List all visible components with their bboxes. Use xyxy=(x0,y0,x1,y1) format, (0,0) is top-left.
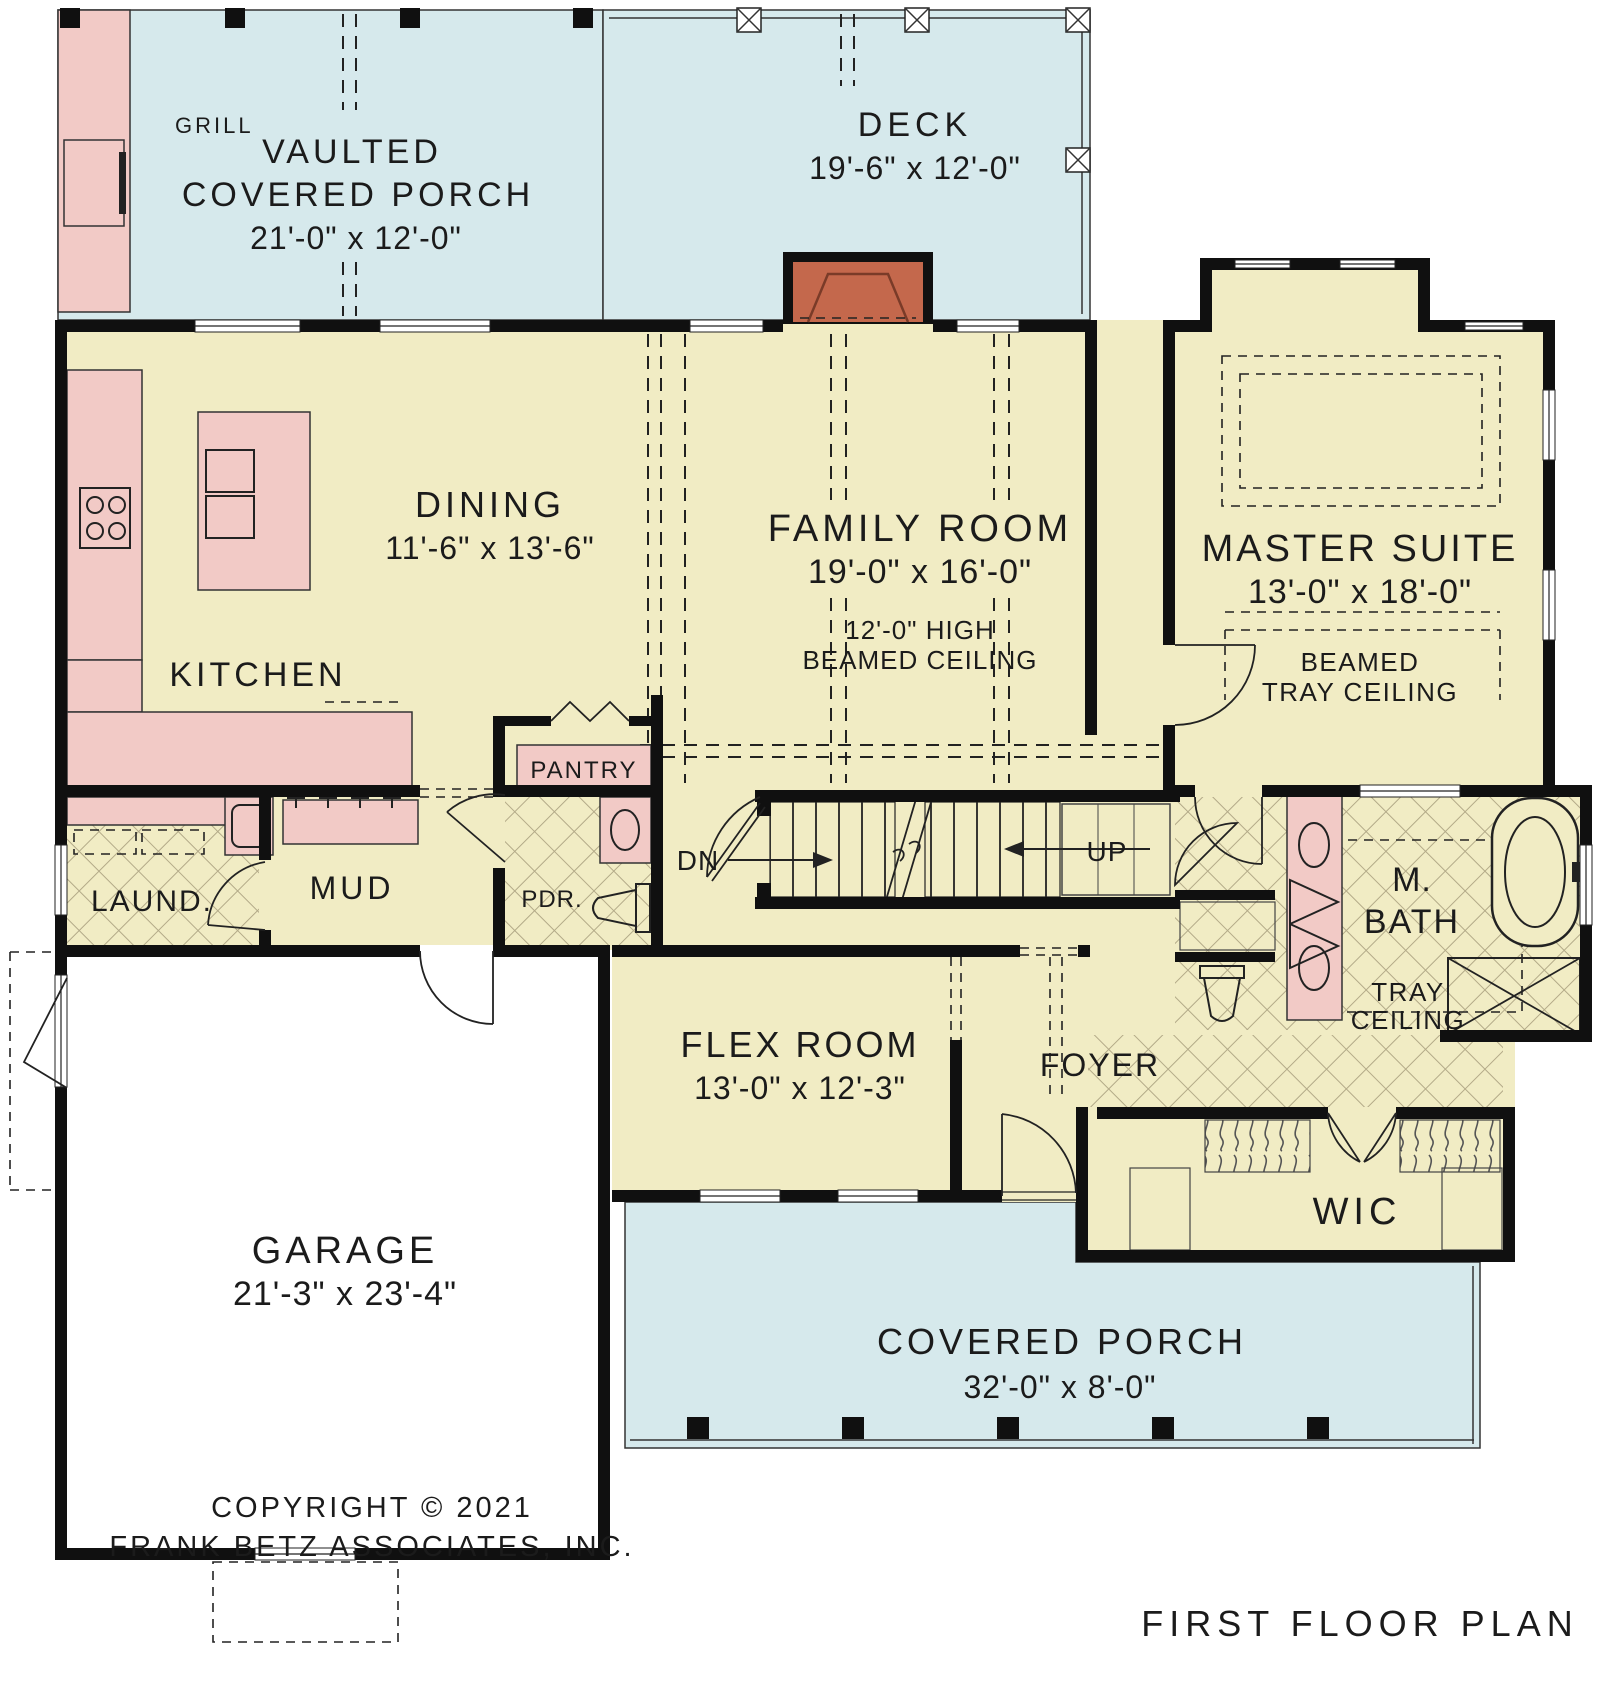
window xyxy=(838,1190,918,1202)
vanity xyxy=(1287,795,1342,1020)
window xyxy=(380,320,490,332)
wic-rack xyxy=(1442,1168,1502,1250)
window xyxy=(1235,260,1290,268)
label-pantry: PANTRY xyxy=(530,757,637,784)
window xyxy=(55,845,67,915)
label-foyer: FOYER xyxy=(1040,1047,1160,1083)
label-wic: WIC xyxy=(1313,1191,1402,1233)
label-garage: GARAGE xyxy=(252,1230,439,1272)
window xyxy=(957,320,1019,332)
label-front-porch: COVERED PORCH xyxy=(877,1321,1247,1362)
label-family-note-1: 12'-0" HIGH xyxy=(845,615,994,645)
window xyxy=(690,320,763,332)
porch-post xyxy=(225,8,245,28)
copyright-line-2: FRANK BETZ ASSOCIATES, INC. xyxy=(109,1531,634,1563)
window xyxy=(1543,390,1555,460)
label-up: UP xyxy=(1087,836,1128,867)
label-mbath-note-2: CEILING xyxy=(1351,1005,1466,1035)
front-porch-post xyxy=(1152,1417,1174,1439)
label-family-note-2: BEAMED CEILING xyxy=(802,645,1037,675)
label-mbath-2: BATH xyxy=(1364,903,1460,941)
deck-post xyxy=(737,8,761,32)
deck-post xyxy=(905,8,929,32)
floor-plan-drawing: GRILL VAULTED COVERED PORCH 21'-0" x 12'… xyxy=(0,0,1600,1690)
floor-plan-page: GRILL VAULTED COVERED PORCH 21'-0" x 12'… xyxy=(0,0,1600,1690)
porch-post xyxy=(573,8,593,28)
porch-post xyxy=(400,8,420,28)
porch-post xyxy=(60,8,80,28)
mud-bench xyxy=(283,800,418,844)
front-porch-post xyxy=(842,1417,864,1439)
front-porch-post xyxy=(687,1417,709,1439)
window xyxy=(1340,260,1395,268)
linen-closet xyxy=(1180,902,1275,950)
window xyxy=(195,320,300,332)
label-garage-dims: 21'-3" x 23'-4" xyxy=(233,1275,457,1313)
label-kitchen: KITCHEN xyxy=(169,656,346,694)
label-flex-dims: 13'-0" x 12'-3" xyxy=(694,1070,906,1106)
garage-door-opening xyxy=(55,975,67,1087)
deck-post xyxy=(1066,148,1090,172)
window xyxy=(1360,785,1460,797)
label-master-note-2: TRAY CEILING xyxy=(1262,677,1458,707)
label-mbath-note-1: TRAY xyxy=(1371,977,1444,1007)
label-family-room: FAMILY ROOM xyxy=(768,508,1072,550)
grill-unit xyxy=(64,140,124,226)
window xyxy=(1580,845,1592,925)
label-master-suite: MASTER SUITE xyxy=(1202,528,1519,570)
label-pdr: PDR. xyxy=(521,886,582,913)
wic-rack xyxy=(1400,1120,1500,1172)
label-vaulted-porch-2: COVERED PORCH xyxy=(182,176,534,214)
window xyxy=(1465,322,1523,330)
laundry-counter xyxy=(67,797,229,825)
window xyxy=(1543,570,1555,640)
label-deck: DECK xyxy=(858,106,972,144)
wic-rack xyxy=(1130,1168,1190,1250)
pdr-sink xyxy=(600,797,651,863)
front-porch-post xyxy=(997,1417,1019,1439)
label-grill: GRILL xyxy=(175,113,254,138)
window xyxy=(700,1190,780,1202)
label-vaulted-porch-dims: 21'-0" x 12'-0" xyxy=(250,220,462,256)
wic-rack xyxy=(1205,1120,1310,1172)
label-master-note-1: BEAMED xyxy=(1301,647,1420,677)
front-porch-post xyxy=(1307,1417,1329,1439)
label-dn: DN xyxy=(677,845,719,876)
label-family-room-dims: 19'-0" x 16'-0" xyxy=(808,553,1032,591)
label-laundry: LAUND. xyxy=(91,885,213,918)
label-vaulted-porch-1: VAULTED xyxy=(262,133,442,171)
kitchen-counter-bottom xyxy=(67,712,412,788)
plan-title: FIRST FLOOR PLAN xyxy=(1141,1603,1578,1644)
label-front-porch-dims: 32'-0" x 8'-0" xyxy=(963,1369,1156,1405)
label-dining: DINING xyxy=(415,484,565,525)
label-mud: MUD xyxy=(310,870,395,906)
label-dining-dims: 11'-6" x 13'-6" xyxy=(385,530,594,566)
label-master-dims: 13'-0" x 18'-0" xyxy=(1248,573,1472,611)
label-deck-dims: 19'-6" x 12'-0" xyxy=(809,150,1021,186)
copyright-line-1: COPYRIGHT © 2021 xyxy=(211,1492,533,1524)
label-mbath-1: M. xyxy=(1392,861,1432,899)
label-flex-room: FLEX ROOM xyxy=(680,1024,919,1065)
deck-post xyxy=(1066,8,1090,32)
